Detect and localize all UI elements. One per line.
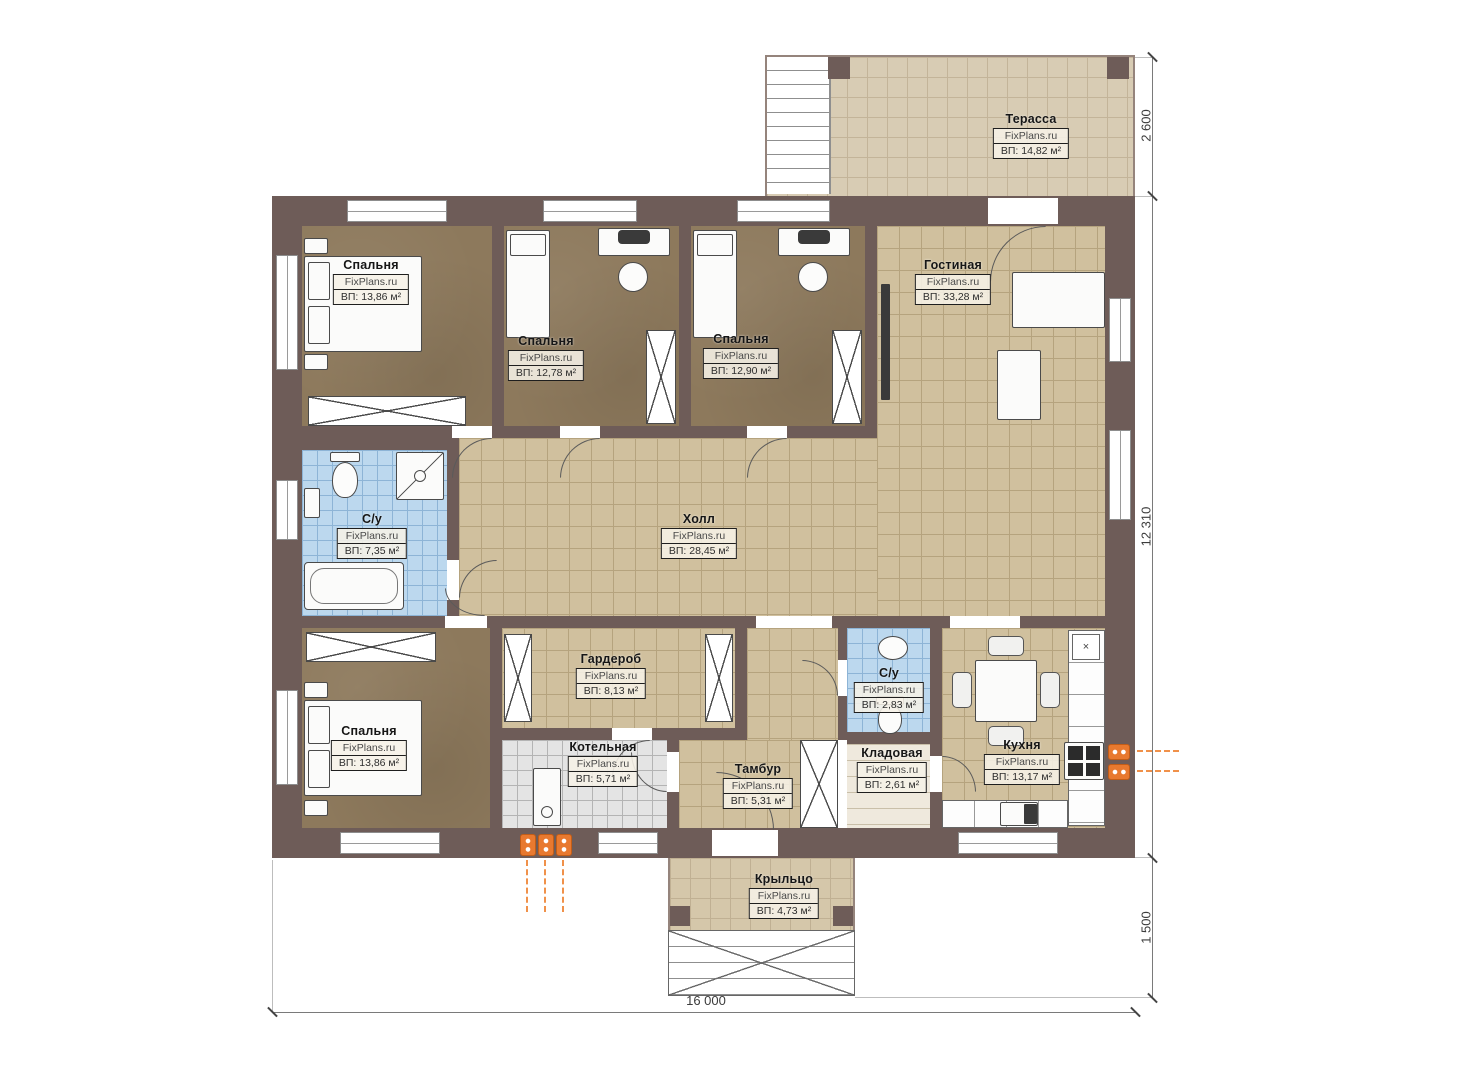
room-name: Спальня bbox=[508, 334, 584, 348]
room-name: Гардероб bbox=[576, 652, 646, 666]
room-label-storage: Кладовая FixPlans.ru ВП: 2,61 м² bbox=[857, 746, 927, 793]
room-name: С/у bbox=[854, 666, 924, 680]
extension-line bbox=[272, 860, 273, 1012]
room-name: Кухня bbox=[984, 738, 1060, 752]
pillow bbox=[308, 750, 330, 788]
window bbox=[958, 832, 1058, 854]
utility-line bbox=[526, 860, 528, 912]
window bbox=[276, 255, 298, 370]
room-area: ВП: 13,17 м² bbox=[985, 769, 1059, 784]
wardrobe-unit bbox=[832, 330, 862, 424]
window bbox=[276, 480, 298, 540]
room-area: ВП: 12,78 м² bbox=[509, 365, 583, 380]
closet-shelf bbox=[504, 634, 532, 722]
room-label-boiler: Котельная FixPlans.ru ВП: 5,71 м² bbox=[568, 740, 638, 787]
opening-hall-kitchen bbox=[950, 616, 1020, 628]
gas-connection-icon bbox=[1108, 744, 1130, 760]
watermark: FixPlans.ru bbox=[704, 349, 778, 363]
terrace-column bbox=[1107, 57, 1129, 79]
gas-connection-icon bbox=[556, 834, 572, 856]
opening-hall-corridor bbox=[756, 616, 832, 628]
watermark: FixPlans.ru bbox=[750, 889, 818, 903]
wall-bath1-top bbox=[302, 438, 459, 450]
wall-bath2-bottom bbox=[847, 732, 942, 744]
shower-drain bbox=[414, 470, 426, 482]
room-label-porch: Крыльцо FixPlans.ru ВП: 4,73 м² bbox=[749, 872, 819, 919]
dimension-line-bottom bbox=[272, 1012, 1135, 1013]
room-label-bedroom3: Спальня FixPlans.ru ВП: 12,90 м² bbox=[703, 332, 779, 379]
pillow bbox=[308, 706, 330, 744]
toilet-icon bbox=[332, 462, 358, 498]
wardrobe-unit bbox=[646, 330, 676, 424]
wall-wardrobe-right bbox=[735, 628, 747, 740]
door-opening bbox=[747, 426, 787, 438]
window bbox=[1109, 298, 1131, 362]
pillow bbox=[510, 234, 546, 256]
bathtub-icon bbox=[304, 562, 404, 610]
nightstand bbox=[304, 800, 328, 816]
window bbox=[1109, 430, 1131, 520]
dimension-house-depth: 12 310 bbox=[1139, 487, 1154, 567]
watermark: FixPlans.ru bbox=[855, 683, 923, 697]
room-name: С/у bbox=[337, 512, 407, 526]
room-name: Кладовая bbox=[857, 746, 927, 760]
watermark: FixPlans.ru bbox=[334, 275, 408, 289]
dimension-porch-depth: 1 500 bbox=[1139, 888, 1154, 968]
dimension-house-width: 16 000 bbox=[646, 993, 766, 1008]
room-name: Крыльцо bbox=[749, 872, 819, 886]
terrace-door-opening bbox=[988, 198, 1058, 224]
pillow bbox=[308, 262, 330, 300]
room-area: ВП: 2,61 м² bbox=[858, 777, 926, 792]
stove-burner bbox=[1068, 746, 1083, 760]
desk-chair-back bbox=[618, 230, 650, 244]
room-area: ВП: 8,13 м² bbox=[577, 683, 645, 698]
terrace-column bbox=[828, 57, 850, 79]
watermark: FixPlans.ru bbox=[577, 669, 645, 683]
gas-connection-icon bbox=[1108, 764, 1130, 780]
hood-symbol: × bbox=[1083, 641, 1089, 653]
chair bbox=[1040, 672, 1060, 708]
gas-connection-icon bbox=[520, 834, 536, 856]
stove-burner bbox=[1068, 763, 1083, 777]
utility-line bbox=[1137, 770, 1179, 772]
hall-closet bbox=[800, 740, 838, 828]
stove-burner bbox=[1086, 763, 1101, 777]
room-area: ВП: 12,90 м² bbox=[704, 363, 778, 378]
window bbox=[598, 832, 658, 854]
room-area: ВП: 33,28 м² bbox=[916, 289, 990, 304]
stove-icon bbox=[1064, 742, 1104, 780]
extension-line bbox=[1135, 57, 1152, 58]
desk-chair-back bbox=[798, 230, 830, 244]
stove-burner bbox=[1086, 746, 1101, 760]
watermark: FixPlans.ru bbox=[509, 351, 583, 365]
nightstand bbox=[304, 354, 328, 370]
room-name: Спальня bbox=[333, 258, 409, 272]
porch-column bbox=[670, 906, 690, 926]
nightstand bbox=[304, 682, 328, 698]
wardrobe-unit bbox=[308, 396, 466, 426]
room-label-bedroom2: Спальня FixPlans.ru ВП: 12,78 м² bbox=[508, 334, 584, 381]
porch-stairs bbox=[668, 930, 855, 996]
entrance-door-opening bbox=[712, 830, 778, 856]
room-area: ВП: 7,35 м² bbox=[338, 543, 406, 558]
wardrobe-unit bbox=[306, 632, 436, 662]
room-name: Котельная bbox=[568, 740, 638, 754]
watermark: FixPlans.ru bbox=[338, 529, 406, 543]
room-label-hall: Холл FixPlans.ru ВП: 28,45 м² bbox=[661, 512, 737, 559]
utility-line bbox=[562, 860, 564, 912]
vent-hood-icon: × bbox=[1072, 634, 1100, 660]
sink-drainer bbox=[1024, 804, 1037, 824]
wall-b1-b2 bbox=[492, 226, 504, 426]
door-opening bbox=[452, 426, 492, 438]
room-area: ВП: 5,31 м² bbox=[724, 793, 792, 808]
utility-line bbox=[1137, 750, 1179, 752]
watermark: FixPlans.ru bbox=[858, 763, 926, 777]
gas-connection-icon bbox=[538, 834, 554, 856]
terrace-stairs bbox=[767, 57, 831, 194]
room-label-bathroom1: С/у FixPlans.ru ВП: 7,35 м² bbox=[337, 512, 407, 559]
washbasin-icon bbox=[304, 488, 320, 518]
wall-b3-living bbox=[865, 226, 877, 426]
window bbox=[340, 832, 440, 854]
door-opening bbox=[930, 756, 942, 792]
door-opening bbox=[560, 426, 600, 438]
room-name: Спальня bbox=[703, 332, 779, 346]
room-area: ВП: 13,86 м² bbox=[334, 289, 408, 304]
washbasin-icon bbox=[878, 636, 908, 660]
watermark: FixPlans.ru bbox=[916, 275, 990, 289]
chair bbox=[952, 672, 972, 708]
room-label-wardrobe: Гардероб FixPlans.ru ВП: 8,13 м² bbox=[576, 652, 646, 699]
extension-line bbox=[855, 997, 1152, 998]
boiler-dial bbox=[541, 806, 553, 818]
watermark: FixPlans.ru bbox=[985, 755, 1059, 769]
chair bbox=[988, 636, 1024, 656]
room-area: ВП: 4,73 м² bbox=[750, 903, 818, 918]
tv-unit bbox=[881, 284, 890, 400]
wall-b2-b3 bbox=[679, 226, 691, 426]
room-area: ВП: 28,45 м² bbox=[662, 543, 736, 558]
porch-column bbox=[833, 906, 853, 926]
room-label-livingroom: Гостиная FixPlans.ru ВП: 33,28 м² bbox=[915, 258, 991, 305]
room-area: ВП: 5,71 м² bbox=[569, 771, 637, 786]
window bbox=[543, 200, 637, 222]
room-label-bathroom2: С/у FixPlans.ru ВП: 2,83 м² bbox=[854, 666, 924, 713]
watermark: FixPlans.ru bbox=[569, 757, 637, 771]
pillow bbox=[697, 234, 733, 256]
nightstand bbox=[304, 238, 328, 254]
room-name: Спальня bbox=[331, 724, 407, 738]
closet-shelf bbox=[705, 634, 733, 722]
extension-line bbox=[1135, 196, 1152, 197]
room-area: ВП: 14,82 м² bbox=[994, 143, 1068, 158]
dining-table bbox=[975, 660, 1037, 722]
desk-chair bbox=[798, 262, 828, 292]
door-opening bbox=[667, 752, 679, 792]
door-opening bbox=[445, 616, 487, 628]
door-opening bbox=[612, 728, 652, 740]
room-name: Холл bbox=[661, 512, 737, 526]
room-label-bedroom1: Спальня FixPlans.ru ВП: 13,86 м² bbox=[333, 258, 409, 305]
watermark: FixPlans.ru bbox=[994, 129, 1068, 143]
room-name: Гостиная bbox=[915, 258, 991, 272]
room-area: ВП: 2,83 м² bbox=[855, 697, 923, 712]
room-name: Терасса bbox=[993, 112, 1069, 126]
door-opening bbox=[838, 660, 847, 696]
coffee-table bbox=[997, 350, 1041, 420]
wall-b4-right bbox=[490, 628, 502, 828]
utility-line bbox=[544, 860, 546, 912]
window bbox=[276, 690, 298, 785]
room-name: Тамбур bbox=[723, 762, 793, 776]
desk-chair bbox=[618, 262, 648, 292]
wall-kitchen-left bbox=[930, 628, 942, 828]
window bbox=[347, 200, 447, 222]
watermark: FixPlans.ru bbox=[662, 529, 736, 543]
watermark: FixPlans.ru bbox=[724, 779, 792, 793]
watermark: FixPlans.ru bbox=[332, 741, 406, 755]
toilet-tank bbox=[330, 452, 360, 462]
room-label-tambour: Тамбур FixPlans.ru ВП: 5,31 м² bbox=[723, 762, 793, 809]
room-label-kitchen: Кухня FixPlans.ru ВП: 13,17 м² bbox=[984, 738, 1060, 785]
floor-plan: × Терасса FixPlans.ru ВП: 14,82 м² Спаль… bbox=[0, 0, 1473, 1080]
window bbox=[737, 200, 830, 222]
pillow bbox=[308, 306, 330, 344]
room-area: ВП: 13,86 м² bbox=[332, 755, 406, 770]
room-label-bedroom4: Спальня FixPlans.ru ВП: 13,86 м² bbox=[331, 724, 407, 771]
room-label-terrace: Терасса FixPlans.ru ВП: 14,82 м² bbox=[993, 112, 1069, 159]
dimension-terrace-depth: 2 600 bbox=[1139, 86, 1154, 166]
